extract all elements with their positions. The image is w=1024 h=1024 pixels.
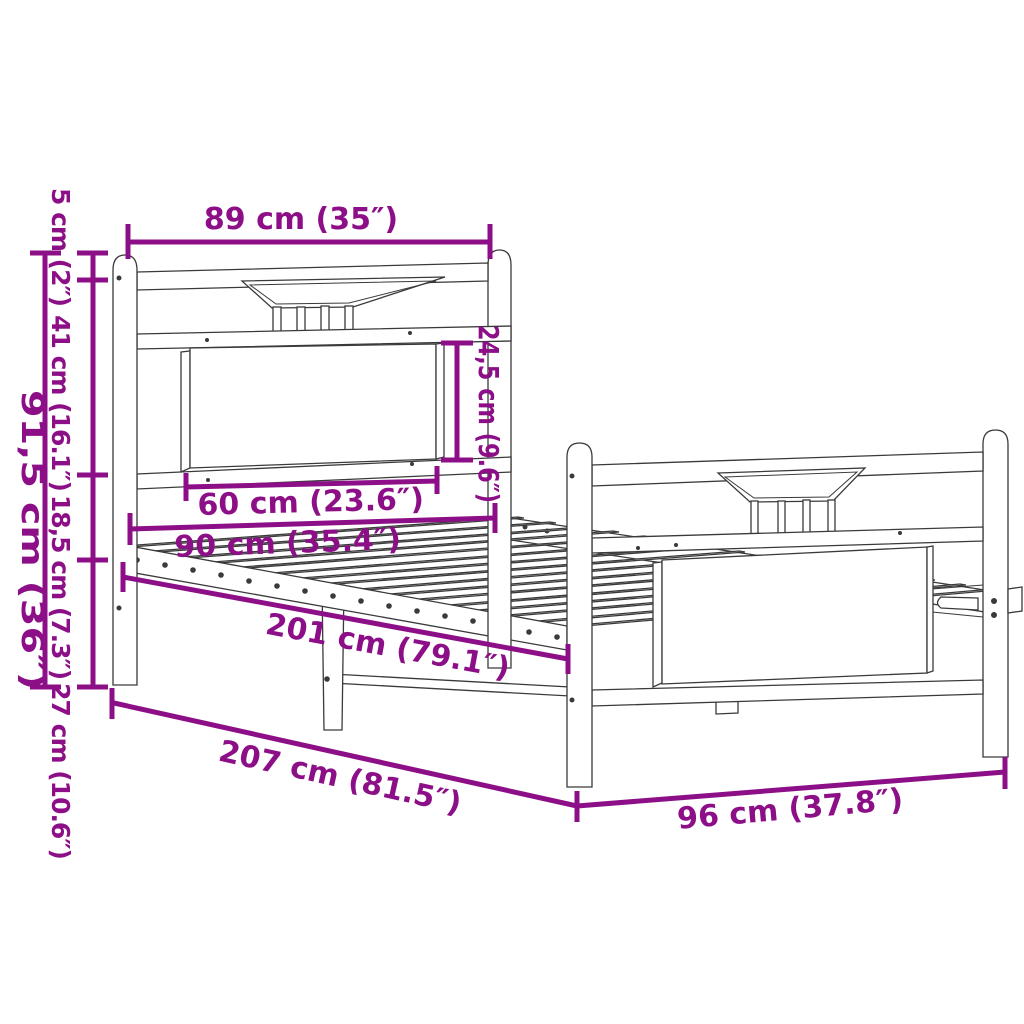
- rail-bracket: [932, 612, 983, 617]
- screw-icon: [674, 543, 678, 547]
- headboard-left-post: [113, 255, 137, 685]
- footboard-bottom-rail: [592, 680, 983, 706]
- screw-icon: [206, 478, 210, 482]
- screw-icon: [636, 546, 640, 550]
- screw-icon: [570, 474, 575, 479]
- dimension-diagram: 89 cm (35″) 91,5 cm (36″) 5 cm (2″)41 cm…: [0, 0, 1024, 1024]
- footboard-panel: [662, 547, 927, 684]
- rail-end-bar: [938, 597, 979, 610]
- headboard-panel-edge: [436, 343, 444, 459]
- headboard-panel-side: [181, 351, 190, 472]
- footboard-right-post: [983, 430, 1008, 757]
- label-post-cap-height: 5 cm (2″): [46, 188, 75, 306]
- screw-icon: [898, 531, 902, 535]
- dim-height-segments-line: [77, 253, 108, 687]
- label-panel-width: 60 cm (23.6″): [197, 482, 424, 523]
- screw-icon: [410, 462, 414, 466]
- funnel-bars: [751, 500, 835, 535]
- footboard-left-post: [567, 443, 592, 787]
- label-ground-clearance: 27 cm (10.6″): [46, 683, 75, 859]
- label-headboard-upper-height: 41 cm (16.1″): [46, 315, 75, 491]
- center-brace: [332, 674, 570, 696]
- footboard-panel-side: [653, 562, 662, 687]
- bed-frame-drawing: 89 cm (35″) 91,5 cm (36″) 5 cm (2″)41 cm…: [0, 0, 1024, 1024]
- label-rail-to-base-height: 18,5 cm (7.3″): [46, 495, 75, 679]
- screw-icon: [570, 698, 575, 703]
- screw-icon: [324, 676, 330, 682]
- headboard-panel: [190, 344, 436, 468]
- label-panel-height: 24,5 cm (9.6″): [472, 325, 505, 503]
- screw-icon: [205, 338, 209, 342]
- screw-icon: [117, 276, 122, 281]
- screw-icon: [991, 612, 997, 618]
- label-headboard-total-height: 91,5 cm (36″): [14, 390, 49, 690]
- dim-total-length-line: [112, 688, 577, 822]
- footboard-panel-edge: [927, 546, 933, 673]
- label-height-segments: 5 cm (2″)41 cm (16.1″)18,5 cm (7.3″)27 c…: [46, 188, 75, 859]
- label-headboard-width: 89 cm (35″): [204, 202, 398, 237]
- dim-panel-height-line: [441, 343, 473, 460]
- screw-icon: [991, 598, 997, 604]
- side-rail-tenon: [1008, 587, 1022, 613]
- label-total-length: 207 cm (81.5″): [215, 734, 464, 822]
- footboard: [567, 430, 1022, 787]
- screw-icon: [117, 606, 122, 611]
- screw-icon: [408, 331, 412, 335]
